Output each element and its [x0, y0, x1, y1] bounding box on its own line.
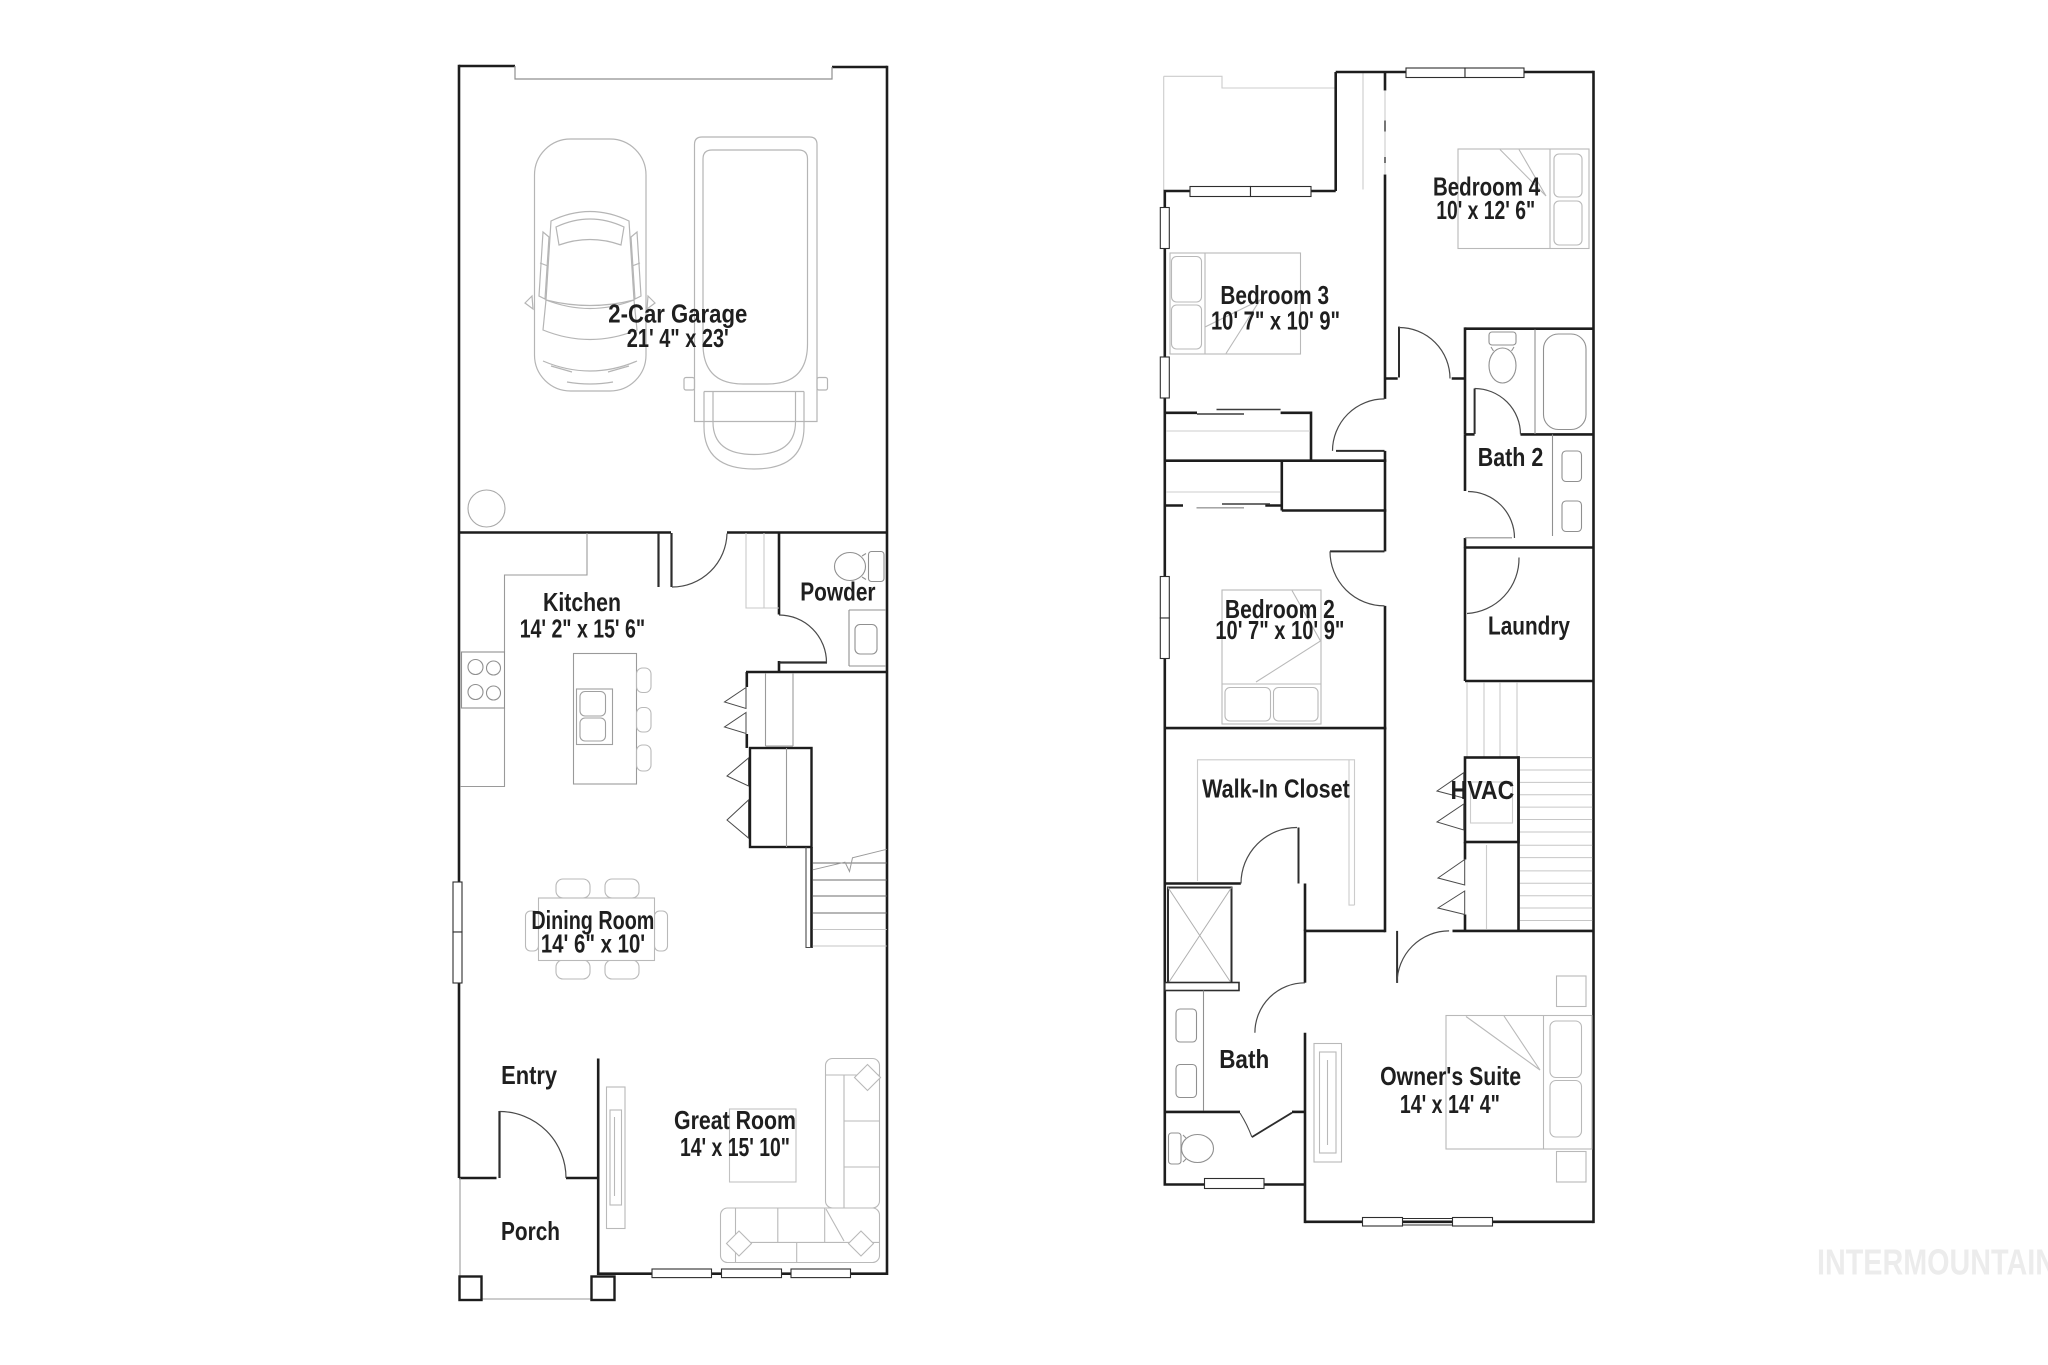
svg-text:Walk-In Closet: Walk-In Closet [1202, 774, 1350, 804]
svg-text:Kitchen: Kitchen [543, 587, 621, 617]
svg-text:Powder: Powder [800, 577, 875, 607]
svg-text:14' x 15' 10": 14' x 15' 10" [680, 1132, 790, 1162]
svg-text:Bath 2: Bath 2 [1478, 442, 1544, 472]
svg-text:INTERMOUNTAIN: INTERMOUNTAIN [1817, 1242, 2048, 1283]
svg-text:14' 2" x 15' 6": 14' 2" x 15' 6" [520, 614, 645, 644]
svg-text:Owner's Suite: Owner's Suite [1380, 1061, 1521, 1091]
svg-text:14' x 14' 4": 14' x 14' 4" [1400, 1089, 1500, 1119]
svg-text:Entry: Entry [501, 1060, 557, 1090]
svg-text:21' 4" x 23': 21' 4" x 23' [627, 323, 729, 353]
svg-text:14' 6" x 10': 14' 6" x 10' [541, 929, 645, 959]
svg-text:10' 7" x 10' 9": 10' 7" x 10' 9" [1211, 305, 1340, 335]
svg-text:10' 7" x 10' 9": 10' 7" x 10' 9" [1215, 615, 1344, 645]
svg-text:Porch: Porch [501, 1216, 560, 1246]
svg-text:Laundry: Laundry [1488, 611, 1570, 641]
svg-text:HVAC: HVAC [1451, 775, 1515, 805]
svg-text:Bath: Bath [1219, 1044, 1269, 1074]
svg-text:Great Room: Great Room [674, 1105, 796, 1135]
svg-text:10' x 12' 6": 10' x 12' 6" [1436, 195, 1535, 225]
